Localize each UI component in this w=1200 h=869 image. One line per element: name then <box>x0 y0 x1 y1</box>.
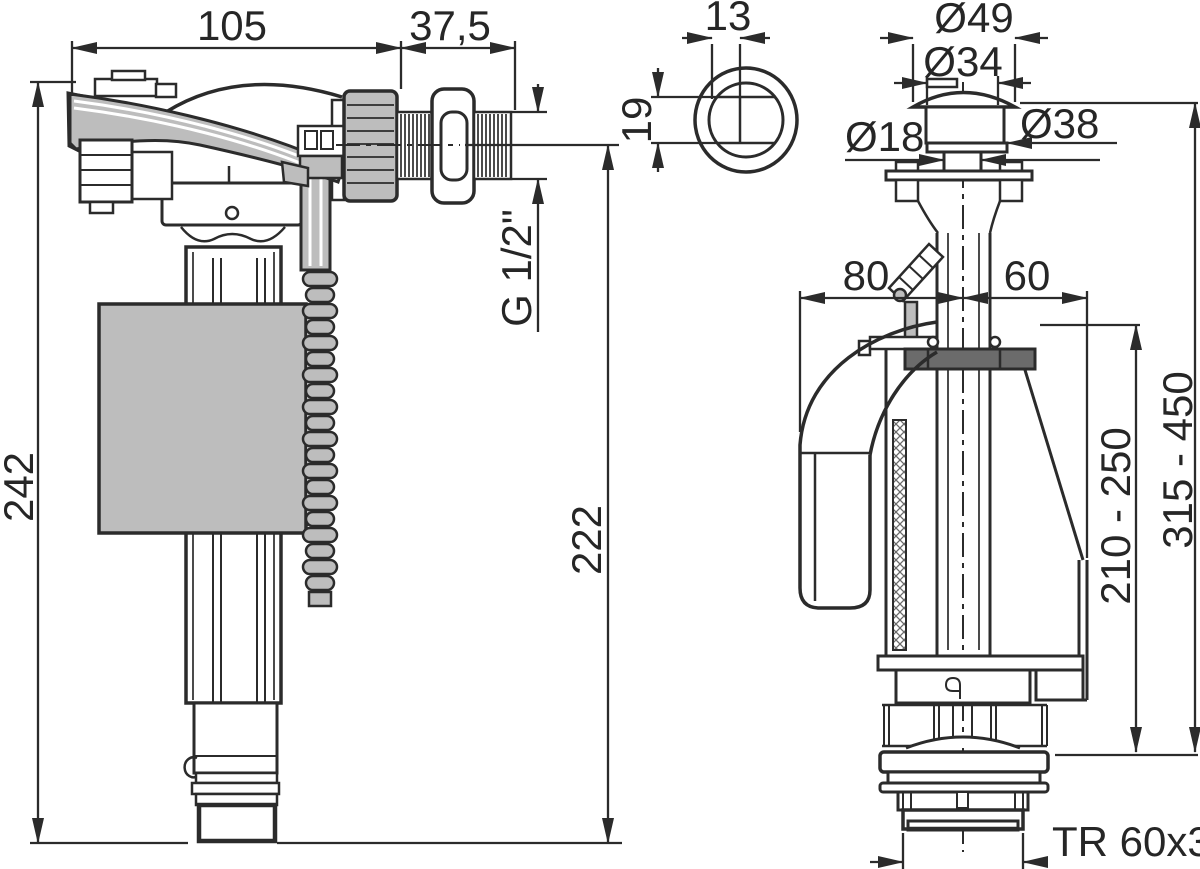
flush-button-cap <box>913 79 1015 171</box>
dim-button-cap-label: Ø49 <box>934 0 1013 41</box>
dim-offset-right-label: 60 <box>1004 252 1051 299</box>
dim-offset-left-label: 80 <box>843 252 890 299</box>
flush-valve-drawing: Ø49 Ø34 Ø18 Ø38 80 60 210 - 250 315 - 45… <box>800 0 1200 869</box>
button-inner-ring <box>709 83 783 157</box>
fill-valve-drawing: 105 37,5 242 G 1/2" 222 <box>0 2 622 843</box>
dim-thread-size-label: G 1/2" <box>493 209 540 327</box>
dim-height-range-outer-label: 315 - 450 <box>1154 371 1200 548</box>
clamp-hook-right <box>990 337 1000 347</box>
dim-total-height-label: 242 <box>0 452 42 522</box>
dim-height-range-inner-label: 210 - 250 <box>1092 427 1139 604</box>
corrugated-hose <box>303 272 337 606</box>
adjustment-bracket <box>80 140 172 213</box>
push-button-top-view: 13 19 <box>613 0 797 172</box>
dim-width-top-label: 105 <box>197 2 267 49</box>
dim-outlet-thread-label: TR 60x3 <box>1052 818 1200 865</box>
float <box>99 304 306 533</box>
valve-lower-housing <box>878 656 1083 830</box>
dim-thread-length-label: 37,5 <box>409 2 491 49</box>
valve-technical-drawing: 105 37,5 242 G 1/2" 222 <box>0 0 1200 869</box>
dim-slot-width-label: 13 <box>705 0 752 39</box>
arm-adjuster-blocks <box>95 71 176 97</box>
dim-slot-height-label: 19 <box>613 97 660 144</box>
dim-axis-height-label: 222 <box>563 505 610 575</box>
fill-valve-dome <box>166 85 342 112</box>
dim-button-base-label: Ø38 <box>1020 100 1099 147</box>
technical-drawing-page: 105 37,5 242 G 1/2" 222 <box>0 0 1200 869</box>
mounting-flange <box>886 162 1032 233</box>
dim-button-body-label: Ø34 <box>923 38 1002 85</box>
overflow-elbow <box>800 322 937 656</box>
fill-valve-outlet <box>199 805 275 841</box>
valve-frame-right <box>1025 370 1087 700</box>
adjustment-rack <box>893 420 906 650</box>
fill-valve-body <box>162 166 302 241</box>
clamp-hook-left <box>928 337 938 347</box>
dim-button-neck-label: Ø18 <box>845 113 924 160</box>
membrane-dome <box>906 737 1020 748</box>
